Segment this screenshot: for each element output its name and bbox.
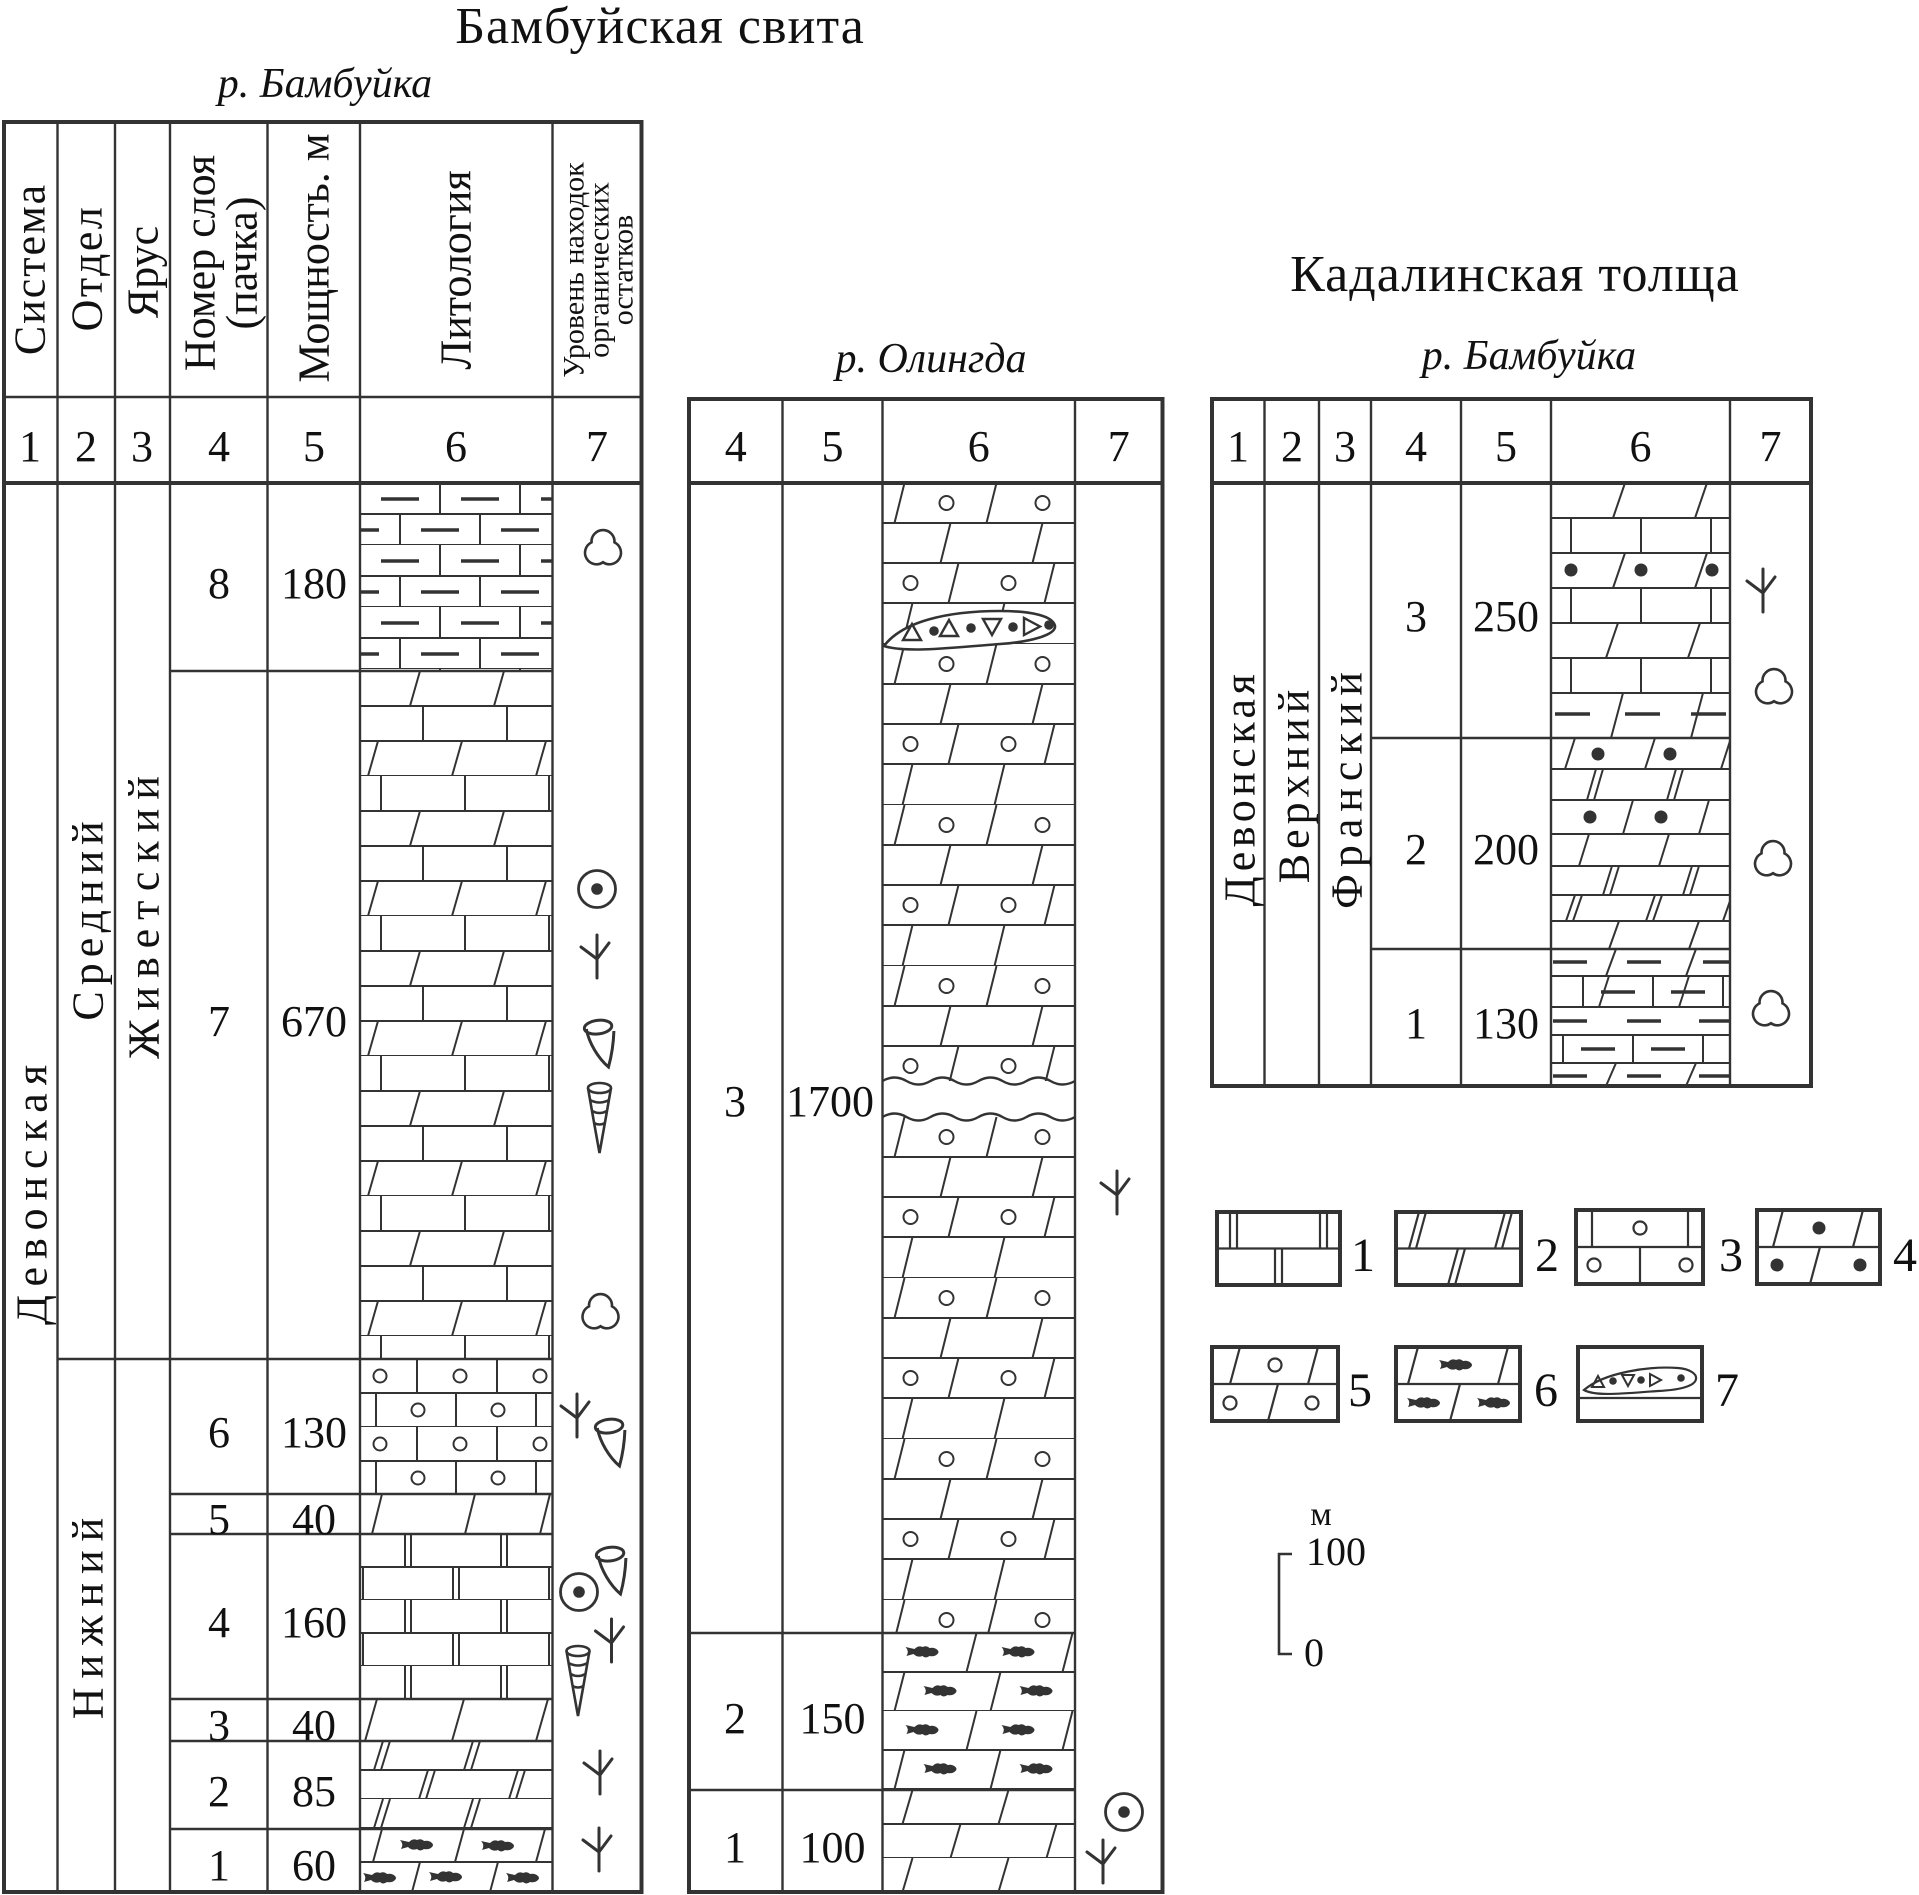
svg-text:Система: Система	[6, 183, 55, 355]
svg-text:2: 2	[1405, 825, 1427, 874]
svg-text:Средний: Средний	[64, 815, 113, 1020]
svg-text:40: 40	[292, 1495, 336, 1544]
svg-text:6: 6	[1630, 422, 1652, 471]
svg-text:200: 200	[1473, 825, 1539, 874]
svg-text:Франский: Франский	[1323, 665, 1372, 909]
svg-text:1: 1	[208, 1841, 230, 1890]
svg-text:Верхний: Верхний	[1270, 685, 1319, 884]
svg-text:6: 6	[1534, 1364, 1558, 1417]
svg-text:4: 4	[208, 422, 230, 471]
svg-text:Ярус: Ярус	[119, 226, 168, 318]
svg-text:1: 1	[19, 422, 41, 471]
svg-text:Живетский: Живетский	[120, 767, 169, 1059]
svg-text:7: 7	[586, 422, 608, 471]
svg-text:670: 670	[281, 997, 347, 1046]
svg-text:8: 8	[208, 559, 230, 608]
svg-text:Отдел: Отдел	[63, 205, 112, 332]
svg-text:Нижний: Нижний	[64, 1509, 113, 1719]
svg-text:остатков: остатков	[607, 215, 640, 325]
svg-text:7: 7	[208, 997, 230, 1046]
svg-text:2: 2	[75, 422, 97, 471]
svg-text:85: 85	[292, 1767, 336, 1816]
svg-text:130: 130	[281, 1408, 347, 1457]
svg-text:2: 2	[1535, 1229, 1559, 1282]
svg-text:4: 4	[1893, 1229, 1917, 1282]
svg-text:150: 150	[800, 1694, 866, 1743]
svg-text:1: 1	[724, 1823, 746, 1872]
svg-text:2: 2	[724, 1694, 746, 1743]
svg-text:1: 1	[1351, 1229, 1375, 1282]
svg-text:6: 6	[968, 422, 990, 471]
svg-text:0: 0	[1304, 1630, 1324, 1675]
svg-text:Девонская: Девонская	[1216, 670, 1265, 907]
svg-text:м: м	[1310, 1496, 1332, 1533]
svg-text:60: 60	[292, 1841, 336, 1890]
svg-text:250: 250	[1473, 592, 1539, 641]
svg-text:7: 7	[1108, 422, 1130, 471]
svg-text:7: 7	[1715, 1364, 1739, 1417]
svg-text:5: 5	[1495, 422, 1517, 471]
svg-text:7: 7	[1760, 422, 1782, 471]
svg-text:Кадалинская толща: Кадалинская толща	[1290, 246, 1740, 303]
svg-text:2: 2	[208, 1767, 230, 1816]
svg-text:3: 3	[131, 422, 153, 471]
svg-text:р. Бамбуйка: р. Бамбуйка	[1419, 333, 1636, 379]
svg-text:3: 3	[724, 1077, 746, 1126]
svg-text:4: 4	[1405, 422, 1427, 471]
svg-text:6: 6	[208, 1408, 230, 1457]
svg-text:Девонская: Девонская	[8, 1057, 57, 1325]
svg-text:р. Олингда: р. Олингда	[832, 336, 1026, 382]
svg-text:6: 6	[445, 422, 467, 471]
svg-text:Бамбуйская свита: Бамбуйская свита	[455, 0, 865, 55]
svg-text:(пачка): (пачка)	[218, 197, 267, 330]
svg-text:3: 3	[208, 1701, 230, 1750]
svg-text:130: 130	[1473, 999, 1539, 1048]
svg-text:3: 3	[1719, 1229, 1743, 1282]
svg-text:4: 4	[725, 422, 747, 471]
svg-text:Мощность. м: Мощность. м	[290, 133, 339, 382]
svg-text:1: 1	[1227, 422, 1249, 471]
svg-text:4: 4	[208, 1598, 230, 1647]
svg-text:1: 1	[1405, 999, 1427, 1048]
svg-text:5: 5	[1348, 1364, 1372, 1417]
svg-text:5: 5	[822, 422, 844, 471]
svg-text:3: 3	[1334, 422, 1356, 471]
svg-text:р. Бамбуйка: р. Бамбуйка	[215, 61, 432, 107]
svg-text:40: 40	[292, 1701, 336, 1750]
svg-text:5: 5	[303, 422, 325, 471]
svg-text:Литология: Литология	[432, 170, 481, 369]
svg-text:2: 2	[1281, 422, 1303, 471]
svg-text:100: 100	[800, 1823, 866, 1872]
svg-text:180: 180	[281, 559, 347, 608]
svg-text:160: 160	[281, 1598, 347, 1647]
svg-text:100: 100	[1306, 1529, 1366, 1574]
svg-text:3: 3	[1405, 592, 1427, 641]
svg-text:1700: 1700	[786, 1077, 874, 1126]
svg-text:5: 5	[208, 1495, 230, 1544]
